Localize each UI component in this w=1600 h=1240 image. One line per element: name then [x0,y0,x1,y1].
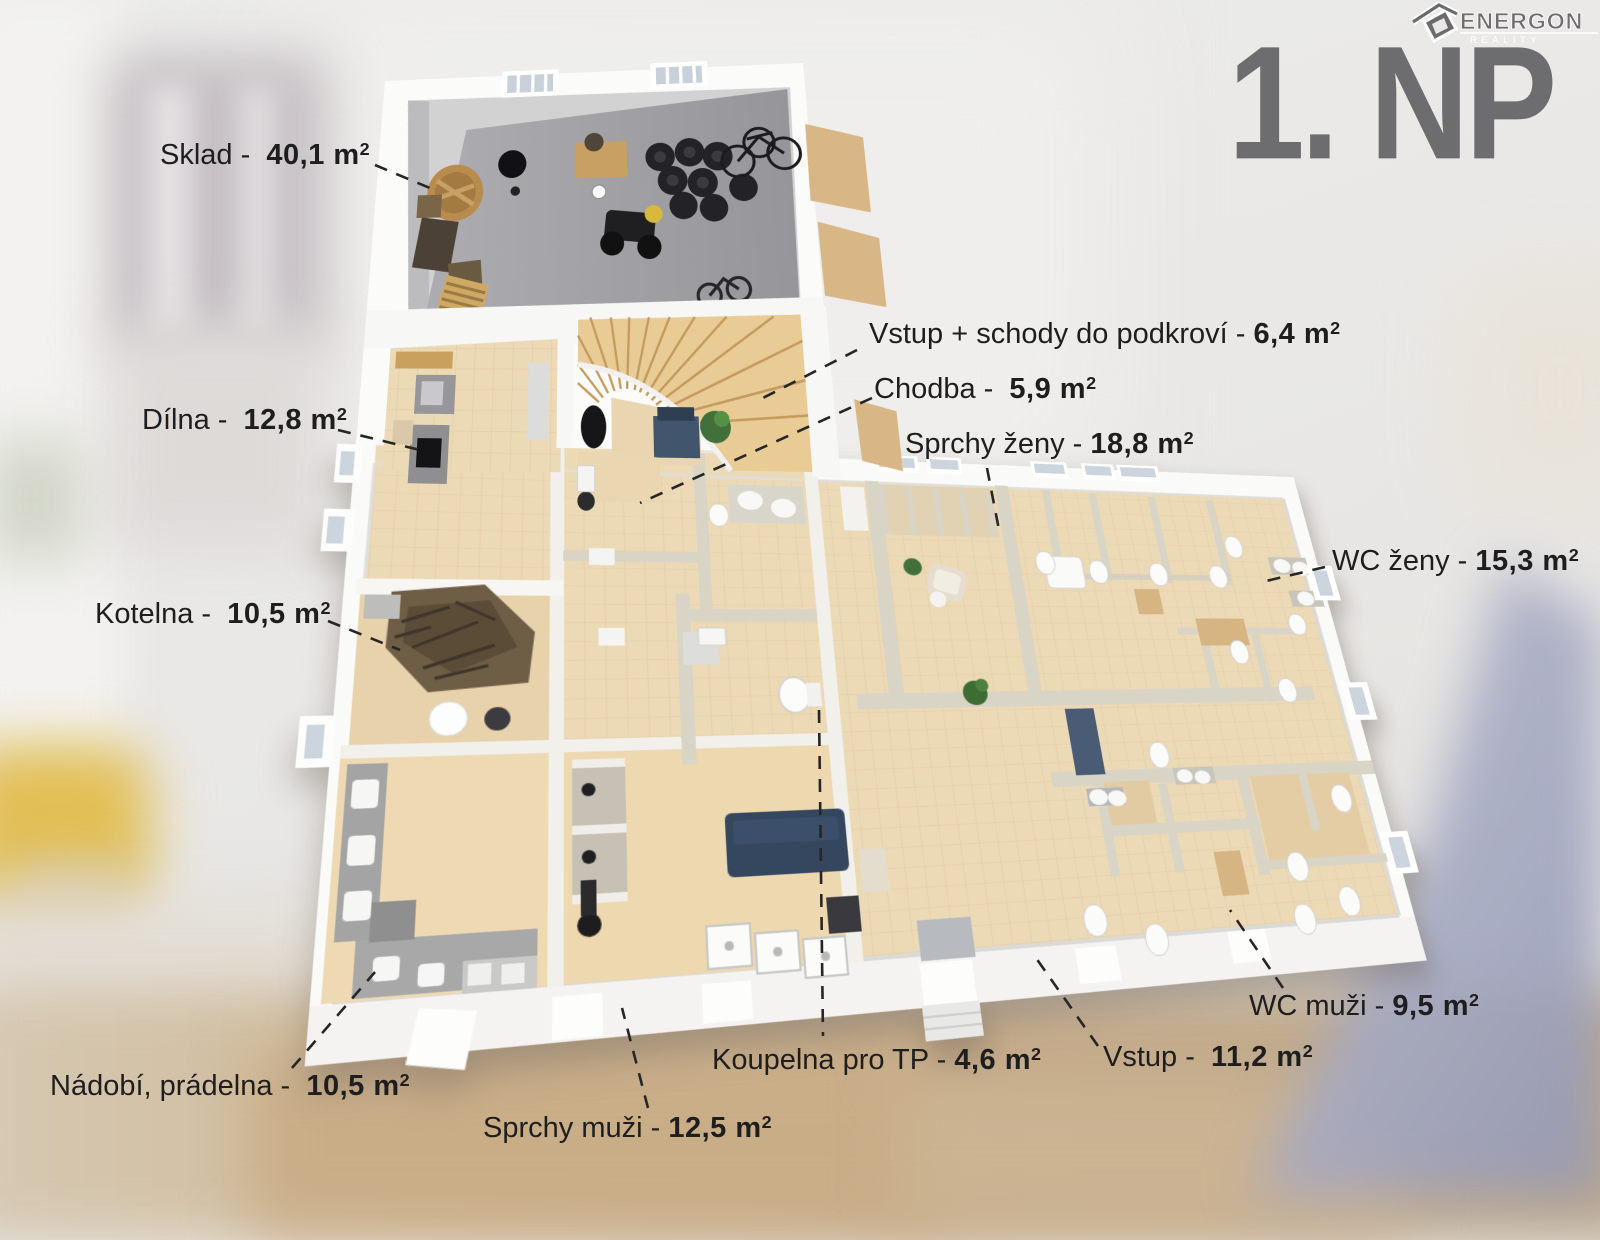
svg-text:ENERGON: ENERGON [1460,8,1583,34]
svg-text:REALITY: REALITY [1470,35,1541,46]
